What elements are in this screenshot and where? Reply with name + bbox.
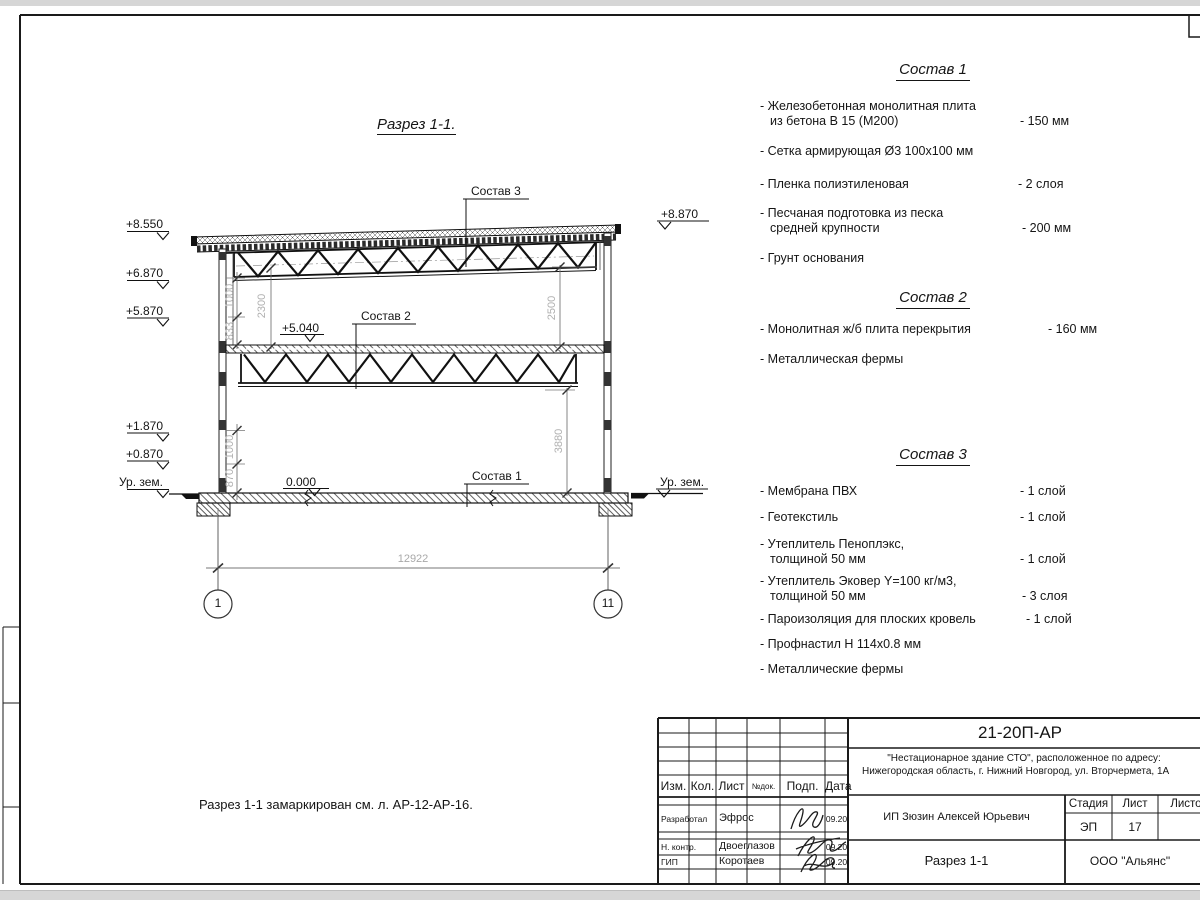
list-item: - Сетка армирующая Ø3 100х100 мм [760, 144, 1016, 159]
list-item: - Геотекстиль- 1 слой [760, 510, 1016, 525]
row-name-gip: Коротаев [719, 855, 764, 867]
callout-sostav1: Состав 1 [472, 469, 522, 483]
stage-header: Стадия [1065, 798, 1112, 810]
level-left-ground: Ур. зем. [95, 475, 163, 489]
list-item: - Грунт основания [760, 251, 1016, 266]
project-line1: "Нестационарное здание СТО", расположенн… [848, 753, 1200, 764]
building-section [169, 224, 703, 516]
row-name-ncontrol: Двоеглазов [719, 840, 775, 852]
sostav1-title: Состав 1 [858, 61, 1008, 81]
roof-slab [194, 225, 618, 244]
sostav2-title: Состав 2 [858, 289, 1008, 309]
level-left-5870: +5.870 [95, 304, 163, 318]
drawing-sheet: Разрез 1-1. +8.550 +6.870 +5.870 +1.870 … [0, 0, 1200, 900]
level-left-0870: +0.870 [95, 447, 163, 461]
project-line2: Нижегородская область, г. Нижний Новгоро… [862, 766, 1169, 777]
level-left-6870: +6.870 [95, 266, 163, 280]
dim-right-3880: 3880 [553, 419, 565, 463]
dim-upper-2300: 2300 [256, 284, 268, 328]
sheet-note: Разрез 1-1 замаркирован см. л. АР-12-АР-… [199, 797, 473, 812]
col-header-data: Дата [825, 779, 848, 793]
callout-sostav2: Состав 2 [361, 309, 411, 323]
level-floor-0000: 0.000 [286, 475, 316, 489]
axis-label-11: 11 [594, 596, 622, 610]
axis-bubbles [204, 516, 622, 618]
dim-lower-870: 870 [224, 456, 236, 500]
drawing-title: Разрез 1-1 [848, 853, 1065, 868]
callout-sostav3: Состав 3 [471, 184, 521, 198]
list-item: - Утеплитель Эковер Y=100 кг/м3, толщино… [760, 574, 1016, 604]
level-right-ground: Ур. зем. [660, 475, 704, 489]
axis-label-1: 1 [204, 596, 232, 610]
list-item: - Песчаная подготовка из песка средней к… [760, 206, 1016, 236]
linework [0, 0, 1200, 900]
row-name-developer: Эфрос [719, 812, 754, 824]
signature-efros [791, 809, 823, 829]
floor-truss [238, 354, 578, 387]
list-item: - Металлические фермы [760, 662, 1016, 677]
list-item: - Монолитная ж/б плита перекрытия- 160 м… [760, 322, 1016, 337]
dim-right-2500: 2500 [546, 286, 558, 330]
list-item: - Металлическая фермы [760, 352, 1016, 367]
sheet-header: Лист [1112, 798, 1158, 810]
col-header-list: Лист [716, 779, 747, 793]
margin-stamp-cells [3, 627, 20, 884]
level-mid-5040: +5.040 [282, 321, 319, 335]
col-header-izm: Изм. [658, 779, 689, 793]
ground-slab [199, 493, 628, 503]
list-item: - Железобетонная монолитная плита из бет… [760, 99, 1016, 129]
roof-edge-left [191, 236, 197, 246]
sheets-header: Листов [1158, 798, 1200, 810]
dim-upper-833: 833 [224, 309, 236, 353]
list-item: - Утеплитель Пеноплэкс, толщиной 50 мм- … [760, 537, 1016, 567]
col-header-ndoc: №док. [747, 782, 780, 791]
list-item: - Профнастил Н 114х0.8 мм [760, 637, 1016, 652]
foundation-right [599, 503, 632, 516]
stage-value: ЭП [1065, 820, 1112, 834]
level-left-8550: +8.550 [95, 217, 163, 231]
sostav3-title: Состав 3 [858, 446, 1008, 466]
row-date-gip: 09.20 [825, 857, 848, 867]
dim-span: 12922 [390, 553, 436, 565]
row-date-developer: 09.20 [825, 814, 848, 824]
level-left-1870: +1.870 [95, 419, 163, 433]
col-header-kol: Кол. [689, 779, 716, 793]
row-date-ncontrol: 09.20 [825, 842, 848, 852]
list-item: - Пленка полиэтиленовая- 2 слоя [760, 177, 1016, 192]
company-name: ООО "Альянс" [1065, 854, 1195, 868]
doc-number: 21-20П-АР [848, 723, 1192, 743]
row-role-gip: ГИП [661, 857, 678, 867]
col-header-podp: Подп. [780, 779, 825, 793]
right-wall [600, 233, 611, 493]
roof-edge-right [615, 224, 621, 234]
level-right-8870: +8.870 [661, 207, 698, 221]
foundation-left [197, 503, 230, 516]
section-view-title: Разрез 1-1. [377, 116, 456, 135]
list-item: - Мембрана ПВХ- 1 слой [760, 484, 1016, 499]
sheet-value: 17 [1112, 820, 1158, 834]
row-role-ncontrol: Н. контр. [661, 842, 696, 852]
elevation-marks [127, 221, 709, 498]
client-name: ИП Зюзин Алексей Юрьевич [848, 811, 1065, 823]
row-role-developer: Разработал [661, 814, 707, 824]
list-item: - Пароизоляция для плоских кровель- 1 сл… [760, 612, 1016, 627]
